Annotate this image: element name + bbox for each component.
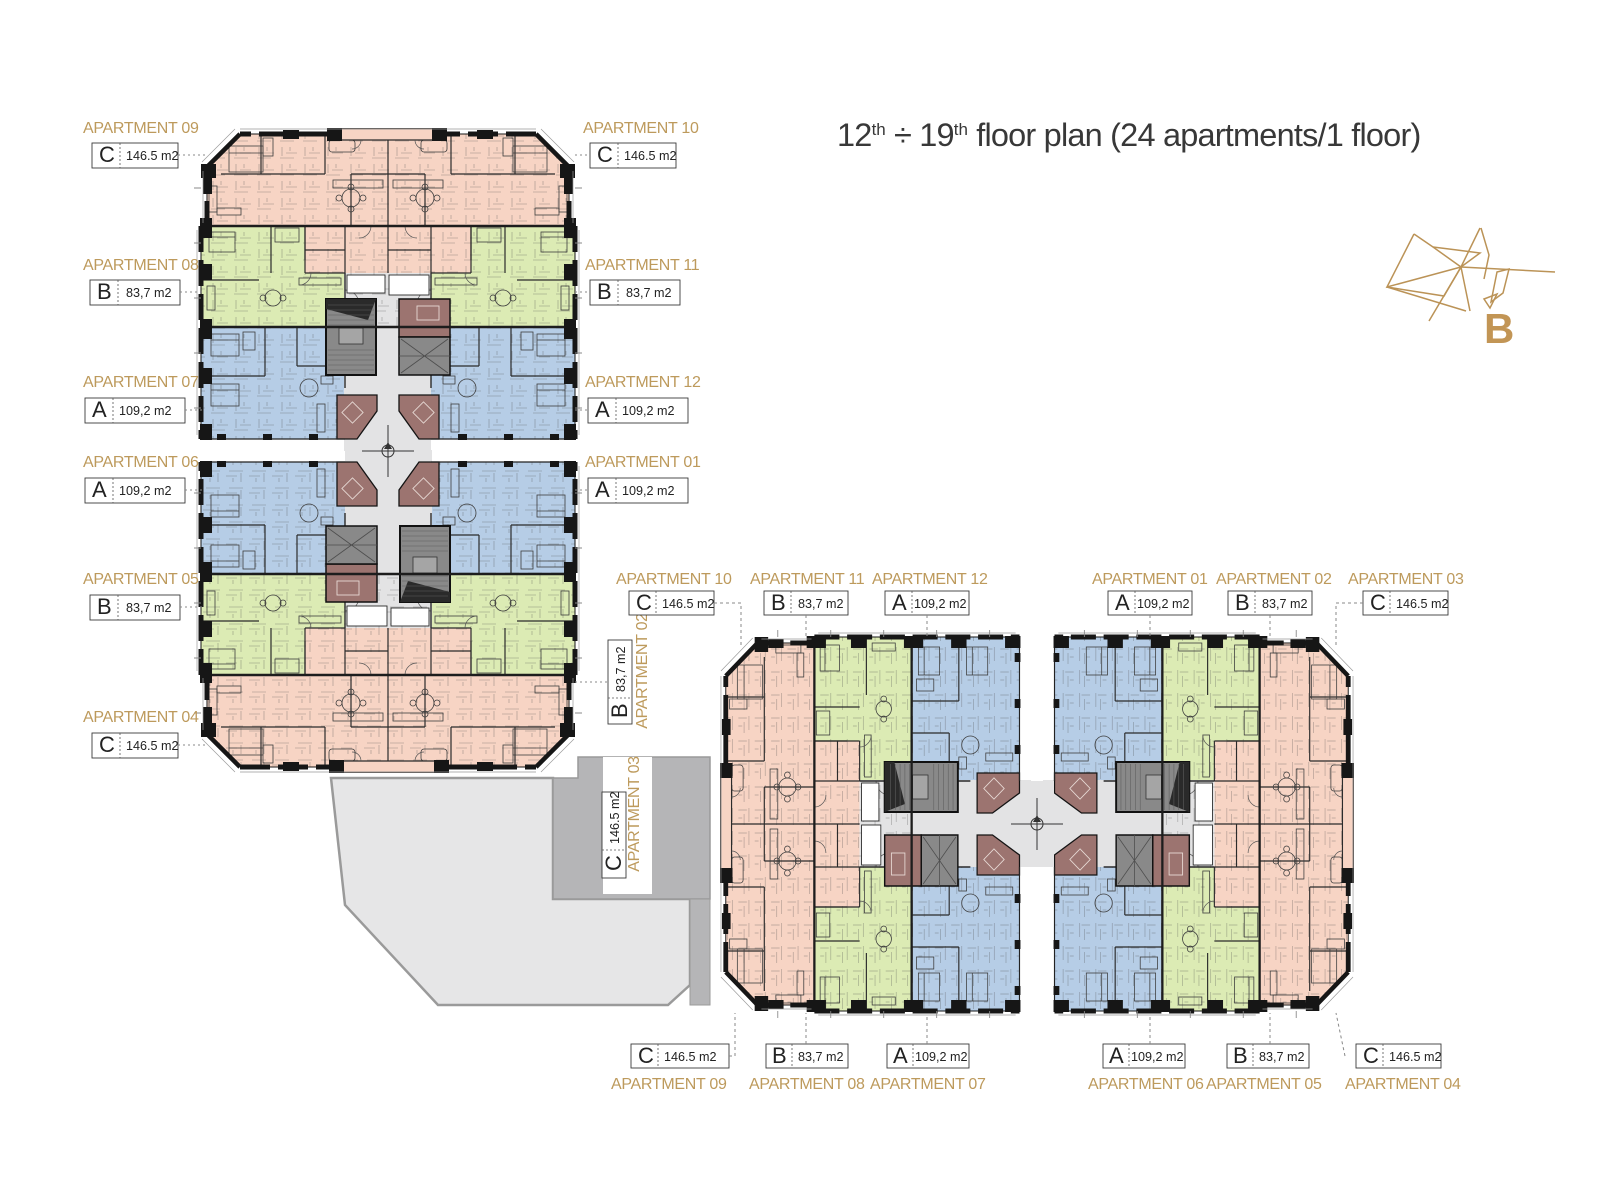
svg-text:A: A (92, 397, 107, 422)
svg-text:APARTMENT 03: APARTMENT 03 (626, 756, 643, 872)
svg-text:C: C (1363, 1043, 1379, 1068)
svg-text:83,7 m2: 83,7 m2 (614, 646, 628, 692)
svg-text:C: C (99, 732, 115, 757)
svg-text:A: A (595, 397, 610, 422)
svg-text:146.5 m2: 146.5 m2 (664, 1050, 717, 1064)
svg-text:C: C (638, 1043, 654, 1068)
svg-text:12th ÷ 19th floor plan (24 apa: 12th ÷ 19th floor plan (24 apartments/1 … (837, 117, 1421, 153)
svg-text:83,7 m2: 83,7 m2 (798, 1050, 844, 1064)
svg-text:A: A (92, 477, 107, 502)
svg-text:83,7 m2: 83,7 m2 (1259, 1050, 1305, 1064)
svg-text:109,2 m2: 109,2 m2 (119, 484, 172, 498)
svg-text:APARTMENT 06: APARTMENT 06 (1088, 1076, 1204, 1093)
svg-text:APARTMENT 04: APARTMENT 04 (1345, 1076, 1461, 1093)
svg-text:APARTMENT 02: APARTMENT 02 (634, 613, 651, 729)
svg-text:146.5 m2: 146.5 m2 (126, 149, 179, 163)
svg-text:C: C (99, 142, 115, 167)
svg-text:APARTMENT 10: APARTMENT 10 (616, 571, 732, 588)
svg-text:APARTMENT 11: APARTMENT 11 (585, 257, 700, 274)
svg-text:APARTMENT 11: APARTMENT 11 (750, 571, 865, 588)
svg-text:146.5 m2: 146.5 m2 (662, 597, 715, 611)
svg-text:146.5 m2: 146.5 m2 (1389, 1050, 1442, 1064)
svg-text:C: C (597, 142, 613, 167)
svg-text:APARTMENT 09: APARTMENT 09 (83, 120, 199, 137)
svg-text:APARTMENT 01: APARTMENT 01 (585, 454, 701, 471)
svg-text:109,2 m2: 109,2 m2 (119, 404, 172, 418)
svg-text:APARTMENT 10: APARTMENT 10 (583, 120, 699, 137)
svg-text:APARTMENT 12: APARTMENT 12 (585, 374, 701, 391)
svg-text:A: A (1115, 590, 1130, 615)
svg-text:APARTMENT 12: APARTMENT 12 (872, 571, 988, 588)
svg-text:109,2 m2: 109,2 m2 (914, 597, 967, 611)
svg-text:APARTMENT 06: APARTMENT 06 (83, 454, 199, 471)
svg-text:B: B (597, 279, 612, 304)
svg-text:B: B (1233, 1043, 1248, 1068)
svg-text:A: A (892, 590, 907, 615)
svg-text:C: C (1370, 590, 1386, 615)
svg-text:C: C (601, 855, 626, 871)
svg-text:83,7 m2: 83,7 m2 (126, 286, 172, 300)
svg-text:A: A (893, 1043, 908, 1068)
svg-text:109,2 m2: 109,2 m2 (1131, 1050, 1184, 1064)
svg-text:83,7 m2: 83,7 m2 (1262, 597, 1308, 611)
svg-text:B: B (97, 594, 112, 619)
svg-text:APARTMENT 01: APARTMENT 01 (1092, 571, 1208, 588)
svg-text:APARTMENT 05: APARTMENT 05 (83, 571, 199, 588)
svg-text:APARTMENT 03: APARTMENT 03 (1348, 571, 1464, 588)
svg-text:B: B (1235, 590, 1250, 615)
svg-text:146.5 m2: 146.5 m2 (624, 149, 677, 163)
svg-text:146.5 m2: 146.5 m2 (1396, 597, 1449, 611)
svg-text:APARTMENT 07: APARTMENT 07 (870, 1076, 986, 1093)
svg-text:APARTMENT 09: APARTMENT 09 (611, 1076, 727, 1093)
svg-text:B: B (771, 590, 786, 615)
svg-text:A: A (1109, 1043, 1124, 1068)
svg-text:146.5 m2: 146.5 m2 (608, 791, 622, 844)
svg-text:B: B (1484, 305, 1514, 352)
svg-text:109,2 m2: 109,2 m2 (915, 1050, 968, 1064)
svg-text:APARTMENT 08: APARTMENT 08 (83, 257, 199, 274)
svg-text:109,2 m2: 109,2 m2 (1137, 597, 1190, 611)
svg-text:APARTMENT 04: APARTMENT 04 (83, 709, 199, 726)
svg-text:109,2 m2: 109,2 m2 (622, 484, 675, 498)
svg-text:B: B (97, 279, 112, 304)
svg-text:C: C (636, 590, 652, 615)
svg-text:APARTMENT 05: APARTMENT 05 (1206, 1076, 1322, 1093)
svg-text:109,2 m2: 109,2 m2 (622, 404, 675, 418)
svg-text:APARTMENT 02: APARTMENT 02 (1216, 571, 1332, 588)
svg-text:APARTMENT 08: APARTMENT 08 (749, 1076, 865, 1093)
svg-text:B: B (607, 703, 632, 718)
svg-text:83,7 m2: 83,7 m2 (126, 601, 172, 615)
svg-text:B: B (772, 1043, 787, 1068)
svg-text:146.5 m2: 146.5 m2 (126, 739, 179, 753)
svg-text:APARTMENT 07: APARTMENT 07 (83, 374, 199, 391)
svg-text:A: A (595, 477, 610, 502)
svg-text:83,7 m2: 83,7 m2 (626, 286, 672, 300)
svg-text:83,7 m2: 83,7 m2 (798, 597, 844, 611)
